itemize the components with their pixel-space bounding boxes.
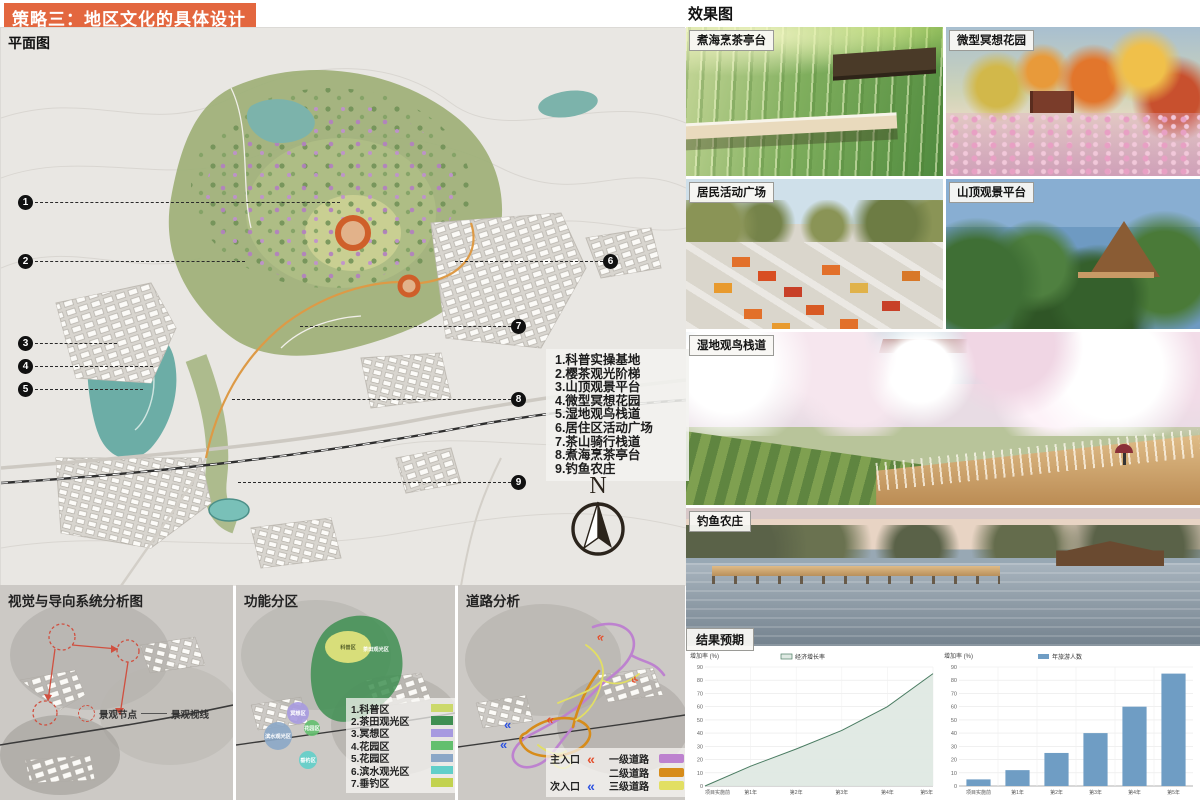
scene-layer (686, 200, 943, 242)
render-image-summit-platform: 山顶观景平台 (946, 179, 1200, 329)
visual-analysis-illustration (0, 585, 233, 800)
scene-layer (1078, 272, 1154, 278)
results-header: 结果预期 (686, 628, 754, 651)
north-label: N (566, 474, 630, 498)
road-legend-row: 二级道路 (550, 766, 684, 780)
plan-marker-8: 8 (511, 392, 526, 407)
svg-text:40: 40 (697, 731, 703, 737)
plan-legend-item: 3.山顶观景平台 (555, 381, 683, 395)
north-compass: N (566, 474, 630, 563)
svg-text:项目实施前: 项目实施前 (966, 789, 991, 796)
render-label-summit-platform: 山顶观景平台 (949, 182, 1034, 203)
zone-color-swatch (431, 741, 453, 750)
svg-text:20: 20 (697, 758, 703, 764)
svg-text:第2年: 第2年 (790, 789, 803, 796)
render-label-residents-plaza: 居民活动广场 (689, 182, 774, 203)
primary-road-swatch (659, 754, 684, 763)
svg-text:0: 0 (954, 784, 957, 790)
leader-line-3 (35, 343, 117, 344)
svg-text:第1年: 第1年 (1011, 789, 1024, 796)
render-label-tea-pavilion: 煮海烹茶亭台 (689, 30, 774, 51)
svg-text:第4年: 第4年 (1128, 789, 1141, 796)
secondary-entrance-icon: « (587, 781, 606, 791)
svg-text:增加率 (%): 增加率 (%) (690, 652, 719, 660)
svg-text:经济增长率: 经济增长率 (795, 653, 825, 661)
scene-layer (1030, 91, 1074, 113)
zone-label-tea: 茶田观光区 (362, 645, 390, 653)
scene-layer (732, 257, 750, 267)
zoning-map-title: 功能分区 (244, 590, 298, 610)
zone-label-fishing: 垂钓区 (300, 756, 316, 764)
leader-line-7 (300, 326, 511, 327)
zoning-legend-row: 7.垂钓区 (351, 776, 453, 788)
svg-text:30: 30 (951, 744, 957, 750)
zoning-map: 茶田观光区 科普区 冥想区 花园区 滨水观光区 垂钓区 功能分区 1.科普区 2… (236, 585, 455, 800)
svg-text:50: 50 (697, 718, 703, 724)
renders-column: 效果图 煮海烹茶亭台 微型冥想花园 居民活动广场 山顶观景平台 (686, 0, 1200, 800)
svg-text:90: 90 (697, 665, 703, 671)
zone-color-swatch (431, 704, 453, 713)
render-image-residents-plaza: 居民活动广场 (686, 179, 943, 329)
plan-legend-item: 1.科普实操基地 (555, 354, 683, 368)
road-legend-row: 次入口 « 三级道路 (550, 779, 684, 793)
visual-analysis-title: 视觉与导向系统分析图 (8, 590, 143, 610)
visual-analysis-legend: 景观节点 景观视线 (78, 705, 209, 722)
svg-text:第3年: 第3年 (1089, 789, 1102, 796)
svg-text:第3年: 第3年 (835, 789, 848, 796)
tourist-count-chart: 0102030405060708090项目实施前第1年第2年第3年第4年第5年年… (942, 650, 1198, 798)
svg-text:项目实施前: 项目实施前 (705, 789, 730, 796)
tertiary-road-swatch (659, 781, 684, 790)
svg-text:«: « (500, 737, 507, 752)
zone-color-swatch (431, 766, 453, 775)
plan-marker-2: 2 (18, 254, 33, 269)
leader-line-1 (35, 202, 340, 203)
leader-line-4 (35, 366, 153, 367)
secondary-road-swatch (659, 768, 684, 777)
svg-text:80: 80 (951, 678, 957, 684)
svg-text:70: 70 (697, 691, 703, 697)
zone-legend-label: 7.垂钓区 (351, 775, 389, 790)
road-analysis-map: « « « « « 道路分析 主入口 « 一级道路 二级道路 次入口 (458, 585, 685, 800)
road-legend-row: 主入口 « 一级道路 (550, 752, 684, 766)
scene-layer (712, 566, 1000, 576)
plan-marker-9: 9 (511, 475, 526, 490)
svg-text:70: 70 (951, 691, 957, 697)
presentation-board: 策略三：地区文化的具体设计 (0, 0, 1200, 800)
zone-label-meditation: 冥想区 (290, 709, 306, 717)
svg-text:10: 10 (697, 771, 703, 777)
plan-marker-4: 4 (18, 359, 33, 374)
sight-line-label: 景观视线 (171, 707, 209, 721)
road-analysis-title: 道路分析 (466, 590, 520, 610)
plan-view-label: 平面图 (8, 33, 50, 53)
svg-text:50: 50 (951, 718, 957, 724)
zone-color-swatch (431, 754, 453, 763)
render-image-wetland-boardwalk: 湿地观鸟栈道 (686, 332, 1200, 505)
render-image-fishing-farm: 钓鱼农庄 (686, 508, 1200, 646)
main-entrance-icon: « (587, 754, 606, 764)
landscape-node-icon (78, 705, 95, 722)
svg-text:40: 40 (951, 731, 957, 737)
plan-marker-1: 1 (18, 195, 33, 210)
render-image-tea-pavilion: 煮海烹茶亭台 (686, 27, 943, 176)
scene-layer (946, 113, 1200, 176)
renders-header: 效果图 (688, 3, 733, 24)
plan-legend-item: 6.居住区活动广场 (555, 422, 683, 436)
svg-text:«: « (504, 717, 511, 732)
tertiary-road-label: 三级道路 (609, 778, 654, 793)
sight-line-icon (141, 713, 167, 714)
zoning-legend: 1.科普区 2.茶田观光区 3.冥想区 4.花园区 5.花园区 6.滨水观光区 … (346, 698, 455, 793)
plan-legend-list: 1.科普实操基地 2.樱茶观光阶梯 3.山顶观景平台 4.微型冥想花园 5.湿地… (546, 349, 689, 481)
main-entrance-label: 主入口 (550, 751, 584, 766)
leader-line-8 (232, 399, 511, 400)
plan-legend-item: 8.煮海烹茶亭台 (555, 449, 683, 463)
plan-marker-5: 5 (18, 382, 33, 397)
svg-text:年旅游人数: 年旅游人数 (1052, 653, 1082, 661)
secondary-entrance-label: 次入口 (550, 778, 584, 793)
visual-analysis-map: 视觉与导向系统分析图 景观节点 景观视线 (0, 585, 233, 800)
leader-line-5 (35, 389, 143, 390)
svg-text:20: 20 (951, 758, 957, 764)
landscape-node-label: 景观节点 (99, 707, 137, 721)
leader-line-2 (35, 261, 245, 262)
scene-layer (686, 242, 943, 329)
zone-color-swatch (431, 729, 453, 738)
svg-text:10: 10 (951, 771, 957, 777)
plan-legend-item: 5.湿地观鸟栈道 (555, 408, 683, 422)
zone-color-swatch (431, 716, 453, 725)
zone-label-waterfront: 滨水观光区 (265, 732, 292, 740)
svg-text:60: 60 (951, 705, 957, 711)
scene-layer (1088, 221, 1160, 277)
render-image-meditation-garden: 微型冥想花园 (946, 27, 1200, 176)
plan-marker-3: 3 (18, 336, 33, 351)
svg-text:30: 30 (697, 744, 703, 750)
svg-text:80: 80 (697, 678, 703, 684)
svg-text:第5年: 第5年 (1167, 789, 1180, 796)
road-legend: 主入口 « 一级道路 二级道路 次入口 « 三级道路 (546, 748, 685, 797)
zone-label-science: 科普区 (340, 643, 356, 651)
svg-text:第4年: 第4年 (881, 789, 894, 796)
svg-text:第1年: 第1年 (744, 789, 757, 796)
svg-text:第5年: 第5年 (920, 789, 933, 796)
render-label-meditation-garden: 微型冥想花园 (949, 30, 1034, 51)
zone-label-garden: 花园区 (304, 724, 320, 732)
leader-line-9 (238, 482, 511, 483)
economic-growth-chart: 0102030405060708090项目实施前第1年第2年第3年第4年第5年经… (688, 650, 938, 798)
plan-marker-7: 7 (511, 319, 526, 334)
render-label-fishing-farm: 钓鱼农庄 (689, 511, 751, 532)
svg-text:第2年: 第2年 (1050, 789, 1063, 796)
render-label-wetland-boardwalk: 湿地观鸟栈道 (689, 335, 774, 356)
svg-text:90: 90 (951, 665, 957, 671)
svg-text:0: 0 (700, 784, 703, 790)
north-arrow-icon (568, 498, 628, 558)
zone-color-swatch (431, 778, 453, 787)
svg-text:60: 60 (697, 705, 703, 711)
leader-line-6 (455, 261, 603, 262)
svg-text:增加率 (%): 增加率 (%) (944, 652, 973, 660)
plan-marker-6: 6 (603, 254, 618, 269)
